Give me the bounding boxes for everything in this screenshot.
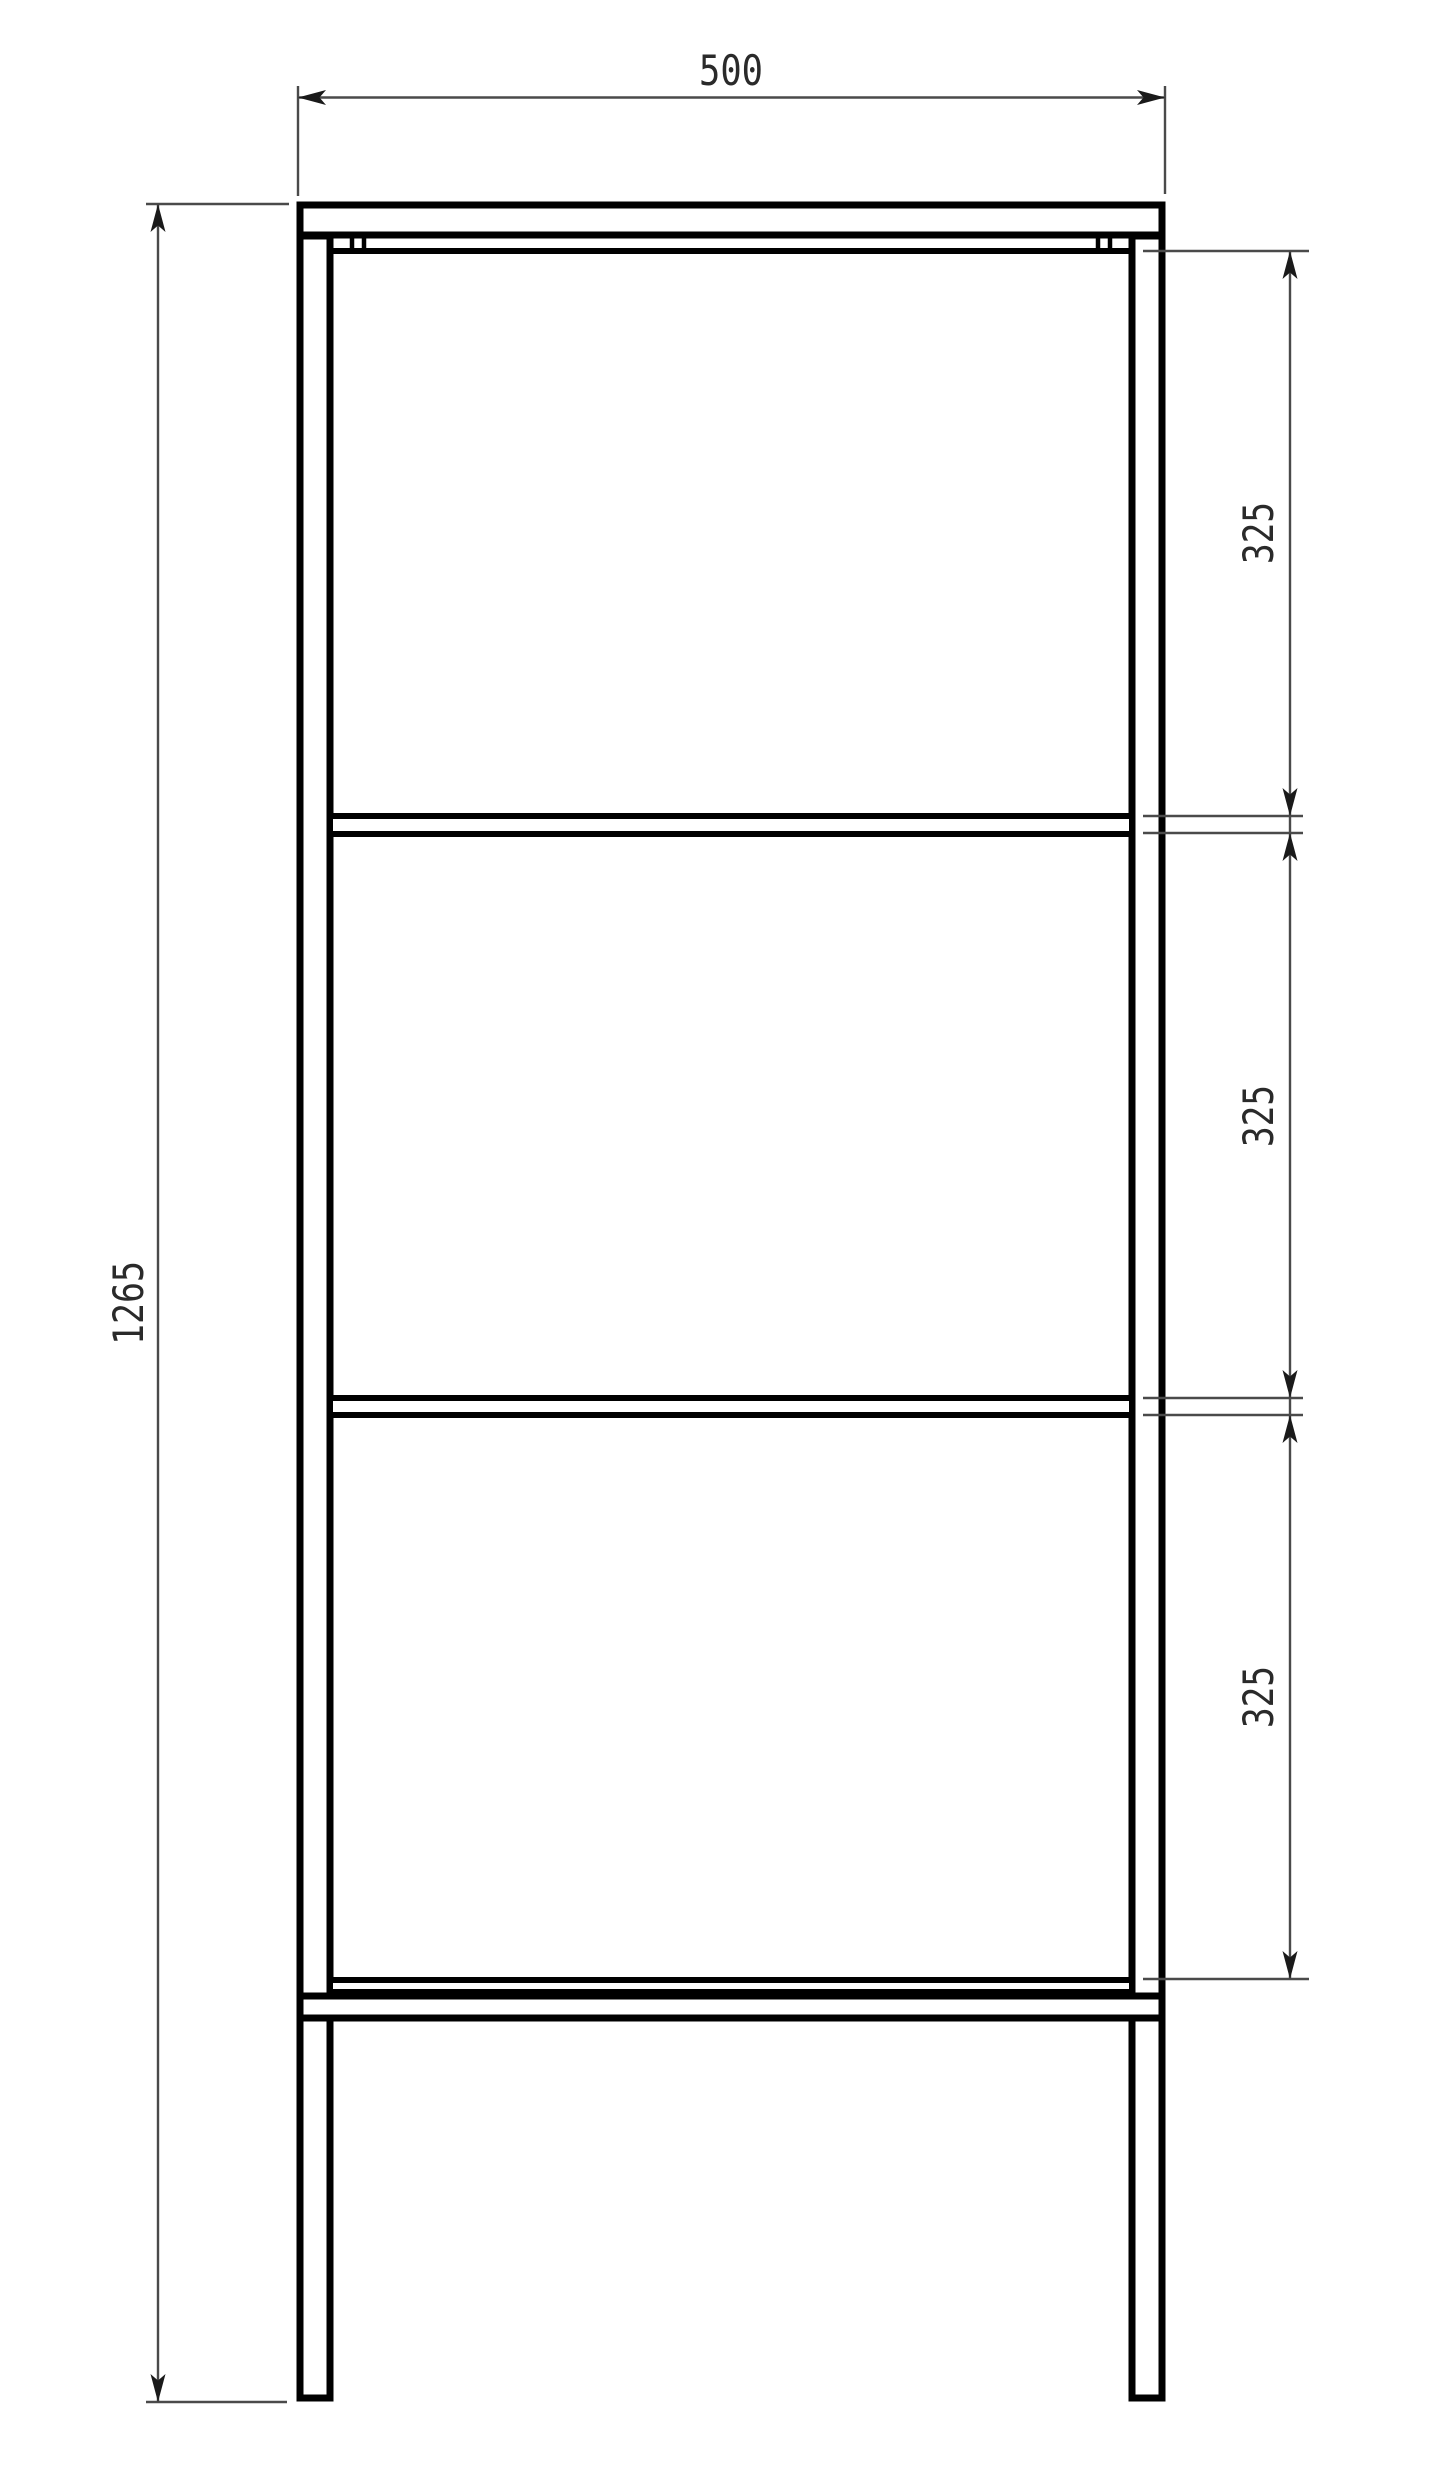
dim-width: 500 [298,46,1165,196]
dim-height: 1265 [104,204,289,2402]
bottom-plate [300,1996,1162,2018]
dim-shelf-spacing: 325 325 325 [1143,251,1309,1979]
dim-height-label: 1265 [104,1261,153,1345]
dim-spacing-label-2: 325 [1234,1085,1283,1147]
left-leg [300,236,330,2398]
dim-spacing-label-1: 325 [1234,502,1283,564]
shelf-rail-1 [330,816,1132,834]
dim-spacing-label-3: 325 [1234,1666,1283,1728]
shelf-frame-technical-drawing: 500 1265 325 325 [0,0,1445,2479]
right-leg [1132,236,1162,2398]
top-plate [300,205,1162,235]
drawing-sheet: 500 1265 325 325 [0,0,1445,2479]
dim-width-label: 500 [699,46,763,95]
bottom-rail [330,1980,1132,1992]
shelf-rail-2 [330,1398,1132,1415]
shelf-frame [300,205,1162,2398]
